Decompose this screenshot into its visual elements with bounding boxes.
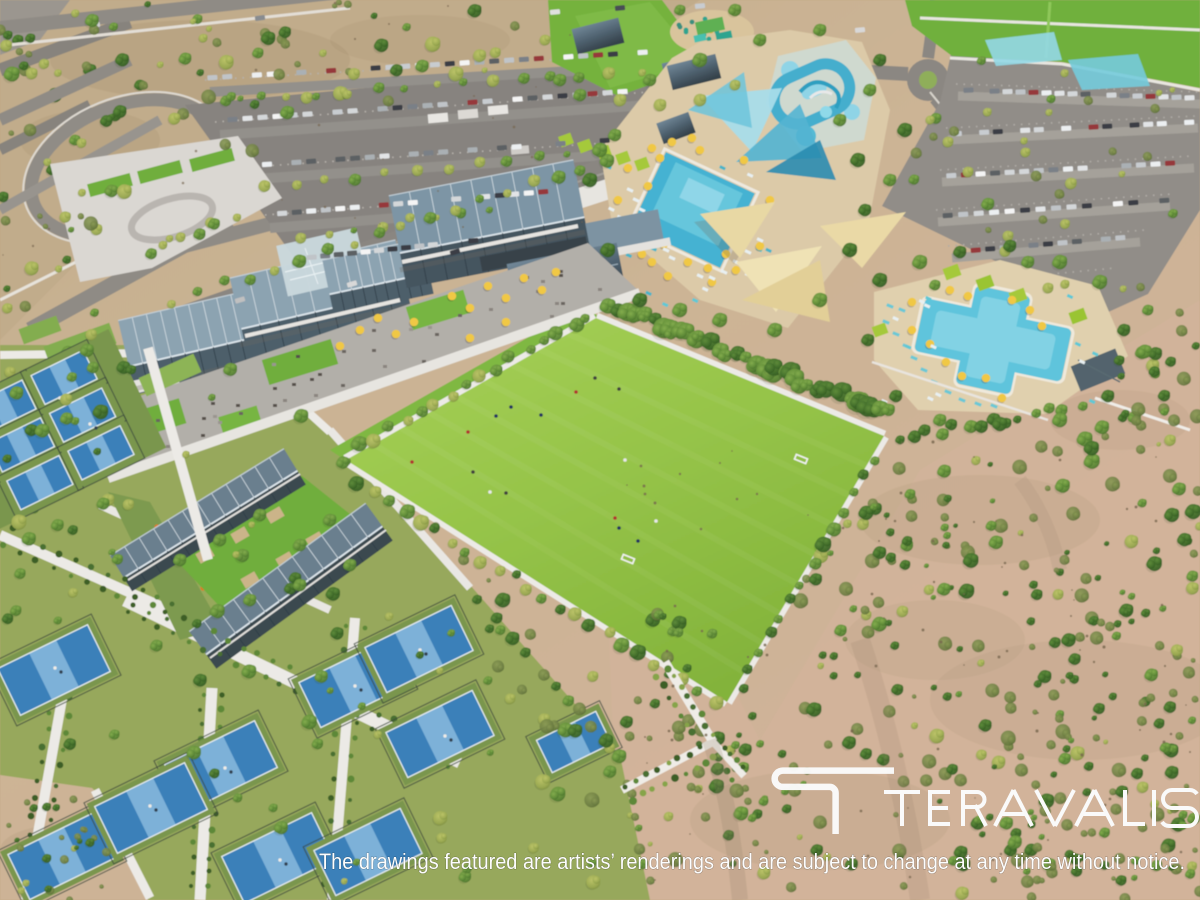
svg-text:The drawings featured are arti: The drawings featured are artists’ rende… [319, 849, 1185, 874]
